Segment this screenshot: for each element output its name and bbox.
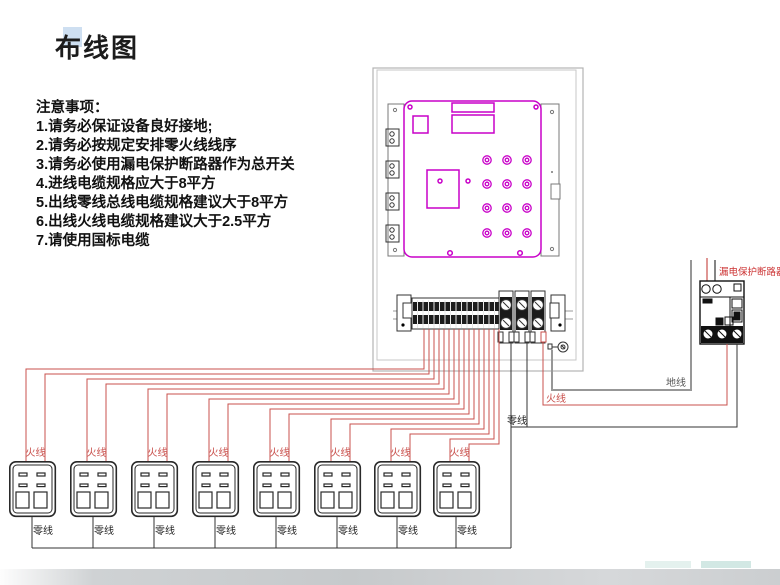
note-line-2: 2.请务必按规定安排零火线线序 (36, 137, 295, 156)
live-fan-wires (26, 329, 499, 461)
wiring-diagram: 火线 零线 地线 漏电保护断路器 (0, 0, 780, 585)
ground-label: 地线 (666, 376, 686, 389)
outlet-8: 火线 零线 (434, 446, 480, 537)
outlet-live-label: 火线 (270, 446, 290, 459)
panel-right-rail (541, 104, 559, 256)
page-title: 布线图 (55, 28, 139, 65)
note-line-7: 7.请使用国标电缆 (36, 232, 295, 251)
neutral-wire-main (511, 342, 737, 427)
outlet-neutral-label: 零线 (216, 524, 236, 537)
control-panel (386, 101, 560, 257)
outlet-7: 火线 零线 (375, 446, 421, 537)
outlets: 火线 零线 火线 零线 (10, 446, 480, 537)
outlet-neutral-label: 零线 (457, 524, 477, 537)
outlet-live-label: 火线 (391, 446, 411, 459)
din-terminal-strip (393, 295, 573, 331)
live-wire-main (543, 342, 727, 405)
note-line-6: 6.出线火线电缆规格建议大于2.5平方 (36, 213, 295, 232)
outlet-neutral-label: 零线 (33, 524, 53, 537)
live-label-main: 火线 (546, 392, 566, 405)
outlet-live-label: 火线 (26, 446, 46, 459)
slide-page: 布线图 注意事项： 1.请务必保证设备良好接地; 2.请务必按规定安排零火线线序… (0, 0, 780, 585)
live-pin (541, 332, 546, 342)
outlet-neutral-label: 零线 (277, 524, 297, 537)
outlet-live-label: 火线 (148, 446, 168, 459)
outlet-4: 火线 零线 (193, 446, 239, 537)
note-line-3: 3.请务必使用漏电保护断路器作为总开关 (36, 156, 295, 175)
panel-left-rail (388, 104, 404, 256)
breaker: 漏电保护断路器 (700, 258, 780, 427)
outlet-live-label: 火线 (209, 446, 229, 459)
outlet-live-label: 火线 (87, 446, 107, 459)
outlet-6: 火线 零线 (315, 446, 361, 537)
outlet-live-label: 火线 (331, 446, 351, 459)
breaker-label: 漏电保护断路器 (719, 266, 780, 278)
outlet-neutral-label: 零线 (94, 524, 114, 537)
panel-body (404, 101, 541, 257)
note-line-1: 1.请务必保证设备良好接地; (36, 118, 295, 137)
outlet-neutral-label: 零线 (398, 524, 418, 537)
outlet-neutral-label: 零线 (155, 524, 175, 537)
outlet-neutral-label: 零线 (338, 524, 358, 537)
outlet-live-label: 火线 (450, 446, 470, 459)
note-line-5: 5.出线零线总线电缆规格建议大于8平方 (36, 194, 295, 213)
power-terminal-block (498, 291, 546, 343)
note-line-4: 4.进线电缆规格应大于8平方 (36, 175, 295, 194)
notes-list: 注意事项： 1.请务必保证设备良好接地; 2.请务必按规定安排零火线线序 3.请… (36, 99, 295, 251)
outlet-2: 火线 零线 (71, 446, 117, 537)
outlet-3: 火线 零线 (132, 446, 178, 537)
notes-heading: 注意事项： (36, 99, 295, 118)
outlet-1: 火线 零线 (10, 446, 56, 537)
outlet-5: 火线 零线 (254, 446, 299, 537)
neutral-label-main: 零线 (507, 414, 527, 427)
